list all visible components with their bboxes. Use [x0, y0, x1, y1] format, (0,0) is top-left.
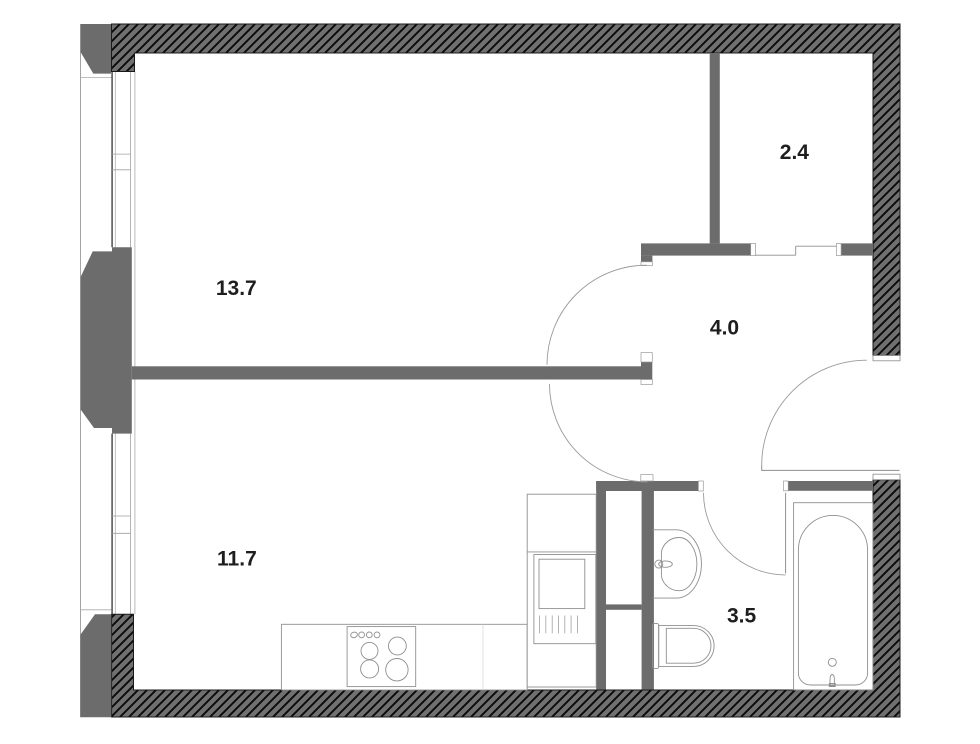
svg-text:3.5: 3.5: [727, 605, 757, 628]
svg-text:13.7: 13.7: [216, 277, 257, 300]
svg-text:2.4: 2.4: [780, 141, 810, 164]
svg-text:4.0: 4.0: [710, 317, 739, 340]
svg-text:11.7: 11.7: [217, 548, 257, 571]
